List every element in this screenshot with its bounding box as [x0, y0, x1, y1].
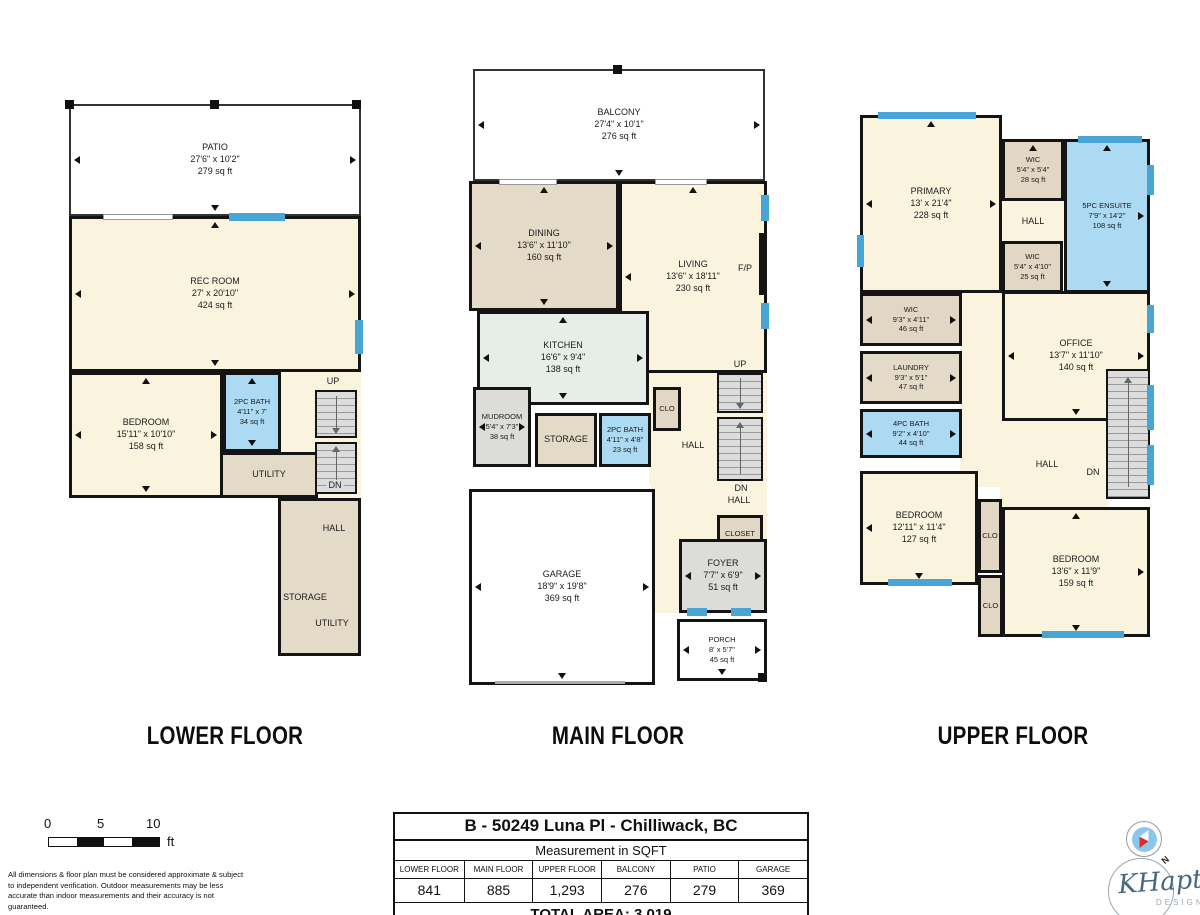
room-dims: 7'7" x 6'9": [703, 570, 742, 582]
dim-arrow-icon: [558, 673, 566, 679]
corner-marker: [210, 100, 219, 109]
dim-arrow-icon: [950, 316, 956, 324]
dim-arrow-icon: [990, 200, 996, 208]
room-name: OFFICE: [1049, 338, 1103, 350]
room-bedroom-upper-2: BEDROOM 13'6" x 11'9" 159 sq ft: [1002, 507, 1150, 637]
room-dims: 5'4" x 5'4": [1017, 165, 1050, 175]
col-header: MAIN FLOOR: [464, 861, 533, 878]
window-marker: [761, 195, 769, 221]
dim-arrow-icon: [559, 317, 567, 323]
dim-arrow-icon: [1103, 281, 1111, 287]
room-laundry: LAUNDRY 9'3" x 5'1" 47 sq ft: [860, 351, 962, 404]
table-header-row: LOWER FLOOR MAIN FLOOR UPPER FLOOR BALCO…: [395, 861, 807, 878]
sqft-value: 369: [738, 878, 807, 902]
scale-tick: 5: [97, 816, 104, 831]
room-sqft: 279 sq ft: [190, 166, 239, 178]
dim-arrow-icon: [683, 646, 689, 654]
room-sqft: 25 sq ft: [1014, 272, 1051, 282]
room-dims: 7'9" x 14'2": [1082, 211, 1131, 221]
dim-arrow-icon: [475, 242, 481, 250]
floor-title-lower: LOWER FLOOR: [147, 722, 303, 751]
stair-label-up: UP: [327, 376, 340, 386]
window-marker: [878, 112, 976, 119]
window-marker: [1147, 385, 1154, 430]
compass-face: [1132, 827, 1157, 852]
stair-label-up: UP: [734, 359, 747, 369]
room-name: MUDROOM: [482, 412, 522, 422]
table-subtitle: Measurement in SQFT: [395, 841, 807, 861]
garage-door: [495, 681, 625, 684]
col-header: PATIO: [670, 861, 739, 878]
room-name: BALCONY: [594, 107, 643, 119]
dim-arrow-icon: [866, 374, 872, 382]
window-marker: [1042, 631, 1124, 638]
room-dims: 4'11" x 4'8": [607, 435, 643, 445]
floor-plan-page: PATIO 27'6" x 10'2" 279 sq ft REC ROOM 2…: [0, 0, 1200, 915]
hall-label: HALL: [323, 523, 346, 533]
window-marker: [1147, 445, 1154, 485]
dim-arrow-icon: [479, 423, 485, 431]
room-dining: DINING 13'6" x 11'10" 160 sq ft: [469, 181, 619, 311]
room-sqft: 38 sq ft: [482, 432, 522, 442]
dim-arrow-icon: [625, 273, 631, 281]
dim-arrow-icon: [211, 360, 219, 366]
room-clo-1: CLO: [978, 499, 1002, 573]
room-sqft: 46 sq ft: [893, 324, 929, 334]
room-name: 5PC ENSUITE: [1082, 201, 1131, 211]
col-header: BALCONY: [601, 861, 670, 878]
window-marker: [355, 320, 363, 354]
dim-arrow-icon: [950, 430, 956, 438]
dim-arrow-icon: [1008, 352, 1014, 360]
room-mudroom: MUDROOM 5'4" x 7'3" 38 sq ft: [473, 387, 531, 467]
room-name: LIVING: [666, 259, 720, 271]
scale-unit: ft: [167, 834, 174, 849]
sqft-value: 885: [464, 878, 533, 902]
dim-arrow-icon: [559, 393, 567, 399]
room-name: CLO: [983, 601, 998, 611]
storage-label: STORAGE: [283, 592, 327, 602]
dim-arrow-icon: [950, 374, 956, 382]
dim-arrow-icon: [1029, 145, 1037, 151]
fireplace: [759, 233, 767, 295]
staircase-down: [717, 417, 763, 481]
room-dims: 27' x 20'10": [190, 288, 240, 300]
dim-arrow-icon: [211, 431, 217, 439]
dim-arrow-icon: [519, 423, 525, 431]
scale-bar-segments: [48, 837, 160, 847]
room-dims: 9'3" x 4'11": [893, 315, 929, 325]
room-dims: 13'6" x 11'9": [1052, 566, 1101, 578]
dim-arrow-icon: [483, 354, 489, 362]
stair-label-dn: DN: [327, 480, 344, 490]
room-name: WIC: [1014, 252, 1051, 262]
window-marker: [103, 214, 173, 220]
dim-arrow-icon: [866, 200, 872, 208]
room-bedroom-upper-1: BEDROOM 12'11" x 11'4" 127 sq ft: [860, 471, 978, 585]
dim-arrow-icon: [349, 290, 355, 298]
room-dims: 13'7" x 11'10": [1049, 350, 1103, 362]
room-name: PRIMARY: [910, 186, 951, 198]
room-foyer: FOYER 7'7" x 6'9" 51 sq ft: [679, 539, 767, 613]
room-patio: PATIO 27'6" x 10'2" 279 sq ft: [69, 104, 361, 216]
dim-arrow-icon: [478, 121, 484, 129]
window-marker: [1147, 165, 1154, 195]
corner-marker: [613, 65, 622, 74]
room-2pc-bath-main: 2PC BATH 4'11" x 4'8" 23 sq ft: [599, 413, 651, 467]
room-name: 2PC BATH: [234, 397, 270, 407]
room-sqft: 45 sq ft: [708, 655, 735, 665]
room-sqft: 159 sq ft: [1052, 578, 1101, 590]
dim-arrow-icon: [142, 378, 150, 384]
room-sqft: 140 sq ft: [1049, 362, 1103, 374]
room-sqft: 44 sq ft: [893, 438, 930, 448]
window-marker: [229, 213, 285, 221]
floor-title-main: MAIN FLOOR: [552, 722, 684, 751]
room-dims: 13'6" x 18'11": [666, 271, 720, 283]
stair-label-dn: DN: [1087, 467, 1100, 477]
dim-arrow-icon: [248, 440, 256, 446]
dim-arrow-icon: [637, 354, 643, 362]
room-sqft: 276 sq ft: [594, 131, 643, 143]
room-dims: 18'9" x 19'8": [537, 581, 586, 593]
room-dims: 9'3" x 5'1": [893, 373, 929, 383]
dim-arrow-icon: [1138, 212, 1144, 220]
dim-arrow-icon: [75, 431, 81, 439]
room-name: REC ROOM: [190, 276, 240, 288]
room-sqft: 47 sq ft: [893, 382, 929, 392]
room-dims: 27'4" x 10'1": [594, 119, 643, 131]
total-area: TOTAL AREA: 3,019: [395, 902, 807, 915]
room-name: DINING: [517, 228, 571, 240]
dim-arrow-icon: [755, 646, 761, 654]
scale-tick: 10: [146, 816, 160, 831]
window-marker: [499, 179, 557, 185]
dim-arrow-icon: [718, 669, 726, 675]
room-sqft: 228 sq ft: [910, 210, 951, 222]
room-dims: 5'4" x 7'3": [482, 422, 522, 432]
window-marker: [761, 303, 769, 329]
room-dims: 9'2" x 4'10": [893, 429, 930, 439]
col-header: LOWER FLOOR: [395, 861, 464, 878]
room-sqft: 34 sq ft: [234, 417, 270, 427]
staircase-down: [1106, 369, 1150, 499]
dim-arrow-icon: [211, 205, 219, 211]
brand-logo: KHaptive DESIGN: [1104, 852, 1200, 915]
hall-area: [1000, 485, 1108, 509]
room-name: 4PC BATH: [893, 419, 930, 429]
room-utility: UTILITY: [223, 452, 318, 498]
room-clo-2: CLO: [978, 575, 1003, 637]
hall-label: HALL: [1036, 459, 1059, 469]
room-primary: PRIMARY 13' x 21'4" 228 sq ft: [860, 115, 1002, 293]
staircase-up: [315, 390, 357, 438]
fireplace-label: F/P: [736, 263, 754, 273]
room-name: GARAGE: [537, 569, 586, 581]
sqft-value: 279: [670, 878, 739, 902]
floor-title-upper: UPPER FLOOR: [938, 722, 1089, 751]
dim-arrow-icon: [927, 121, 935, 127]
sqft-value: 841: [395, 878, 464, 902]
hall-label: HALL: [1022, 216, 1045, 226]
disclaimer-text: All dimensions & floor plan must be cons…: [8, 870, 250, 913]
stair-label-dn: DN: [735, 483, 748, 493]
dim-arrow-icon: [540, 187, 548, 193]
room-dims: 16'6" x 9'4": [541, 352, 585, 364]
logo-subtext: DESIGN: [1156, 898, 1200, 907]
room-rec-room: REC ROOM 27' x 20'10" 424 sq ft: [69, 216, 361, 372]
window-marker: [1147, 305, 1154, 333]
room-name: FOYER: [703, 558, 742, 570]
dim-arrow-icon: [540, 299, 548, 305]
room-name: CLO: [659, 404, 674, 414]
dim-arrow-icon: [754, 121, 760, 129]
room-wic-3: WIC 9'3" x 4'11" 46 sq ft: [860, 293, 962, 346]
room-bedroom-lower: BEDROOM 15'11" x 10'10" 158 sq ft: [69, 372, 223, 498]
room-name: KITCHEN: [541, 340, 585, 352]
room-dims: 13' x 21'4": [910, 198, 951, 210]
room-name: PATIO: [190, 142, 239, 154]
col-header: UPPER FLOOR: [532, 861, 601, 878]
dim-arrow-icon: [1072, 513, 1080, 519]
room-name: WIC: [1017, 155, 1050, 165]
room-sqft: 28 sq ft: [1017, 175, 1050, 185]
scale-tick: 0: [44, 816, 51, 831]
room-sqft: 424 sq ft: [190, 300, 240, 312]
room-sqft: 51 sq ft: [703, 582, 742, 594]
dim-arrow-icon: [689, 187, 697, 193]
window-marker: [857, 235, 864, 267]
floor-plan-main: BALCONY 27'4" x 10'1" 276 sq ft DINING 1…: [465, 65, 770, 690]
room-sqft: 23 sq ft: [607, 445, 643, 455]
dim-arrow-icon: [248, 378, 256, 384]
dim-arrow-icon: [350, 156, 356, 164]
room-name: 2PC BATH: [607, 425, 643, 435]
address-title: B - 50249 Luna Pl - Chilliwack, BC: [395, 814, 807, 841]
room-wic-2: WIC 5'4" x 4'10" 25 sq ft: [1002, 241, 1063, 293]
room-2pc-bath-lower: 2PC BATH 4'11" x 7' 34 sq ft: [223, 372, 281, 452]
window-marker: [888, 579, 952, 586]
room-sqft: 127 sq ft: [892, 534, 945, 546]
room-name: PORCH: [708, 635, 735, 645]
window-marker: [655, 179, 707, 185]
dim-arrow-icon: [1072, 409, 1080, 415]
dim-arrow-icon: [866, 430, 872, 438]
room-balcony: BALCONY 27'4" x 10'1" 276 sq ft: [473, 69, 765, 181]
room-sqft: 369 sq ft: [537, 593, 586, 605]
dim-arrow-icon: [866, 316, 872, 324]
room-dims: 4'11" x 7': [234, 407, 270, 417]
utility-label: UTILITY: [315, 618, 349, 628]
room-dims: 27'6" x 10'2": [190, 154, 239, 166]
hall-label: HALL: [728, 495, 751, 505]
room-dims: 13'6" x 11'10": [517, 240, 571, 252]
room-5pc-ensuite: 5PC ENSUITE 7'9" x 14'2" 108 sq ft: [1064, 139, 1150, 293]
window-marker: [687, 608, 707, 616]
dim-arrow-icon: [866, 524, 872, 532]
room-garage: GARAGE 18'9" x 19'8" 369 sq ft: [469, 489, 655, 685]
room-sqft: 230 sq ft: [666, 283, 720, 295]
room-sqft: 160 sq ft: [517, 252, 571, 264]
room-dims: 8' x 5'7": [708, 645, 735, 655]
room-name: CLOSET: [725, 529, 755, 539]
measurement-table: B - 50249 Luna Pl - Chilliwack, BC Measu…: [393, 812, 809, 915]
room-storage-utility: [278, 498, 361, 656]
room-name: STORAGE: [544, 434, 588, 446]
sqft-value: 276: [601, 878, 670, 902]
dim-arrow-icon: [1103, 145, 1111, 151]
dim-arrow-icon: [607, 242, 613, 250]
dim-arrow-icon: [1138, 352, 1144, 360]
dim-arrow-icon: [755, 572, 761, 580]
staircase-up: [717, 373, 763, 413]
room-name: BEDROOM: [892, 510, 945, 522]
room-name: LAUNDRY: [893, 363, 929, 373]
room-closet-clo: CLO: [653, 387, 681, 431]
floor-plan-upper: PRIMARY 13' x 21'4" 228 sq ft WIC 5'4" x…: [850, 105, 1155, 650]
room-4pc-bath: 4PC BATH 9'2" x 4'10" 44 sq ft: [860, 409, 962, 458]
room-storage-main: STORAGE: [535, 413, 597, 467]
hall-label: HALL: [682, 440, 705, 450]
room-dims: 5'4" x 4'10": [1014, 262, 1051, 272]
table-value-row: 841 885 1,293 276 279 369: [395, 878, 807, 902]
dim-arrow-icon: [1138, 568, 1144, 576]
dim-arrow-icon: [142, 486, 150, 492]
dim-arrow-icon: [643, 583, 649, 591]
dim-arrow-icon: [75, 290, 81, 298]
corner-marker: [352, 100, 361, 109]
window-marker: [1078, 136, 1142, 143]
room-name: BEDROOM: [117, 417, 176, 429]
room-wic-1: WIC 5'4" x 5'4" 28 sq ft: [1002, 139, 1064, 201]
room-name: CLO: [982, 531, 997, 541]
floor-plan-lower: PATIO 27'6" x 10'2" 279 sq ft REC ROOM 2…: [65, 100, 365, 656]
dim-arrow-icon: [211, 222, 219, 228]
room-dims: 15'11" x 10'10": [117, 429, 176, 441]
room-porch: PORCH 8' x 5'7" 45 sq ft: [677, 619, 767, 681]
dim-arrow-icon: [685, 572, 691, 580]
hall-area: [651, 479, 681, 613]
room-name: BEDROOM: [1052, 554, 1101, 566]
room-name: WIC: [893, 305, 929, 315]
room-dims: 12'11" x 11'4": [892, 522, 945, 534]
compass-needle-icon: [1135, 828, 1153, 850]
corner-marker: [65, 100, 74, 109]
dim-arrow-icon: [475, 583, 481, 591]
room-sqft: 158 sq ft: [117, 441, 176, 453]
window-marker: [731, 608, 751, 616]
dim-arrow-icon: [74, 156, 80, 164]
corner-marker: [758, 673, 767, 682]
room-name: UTILITY: [252, 469, 286, 481]
sqft-value: 1,293: [532, 878, 601, 902]
dim-arrow-icon: [615, 170, 623, 176]
room-sqft: 138 sq ft: [541, 364, 585, 376]
scale-bar: 0 5 10 ft: [40, 816, 200, 860]
room-sqft: 108 sq ft: [1082, 221, 1131, 231]
col-header: GARAGE: [738, 861, 807, 878]
